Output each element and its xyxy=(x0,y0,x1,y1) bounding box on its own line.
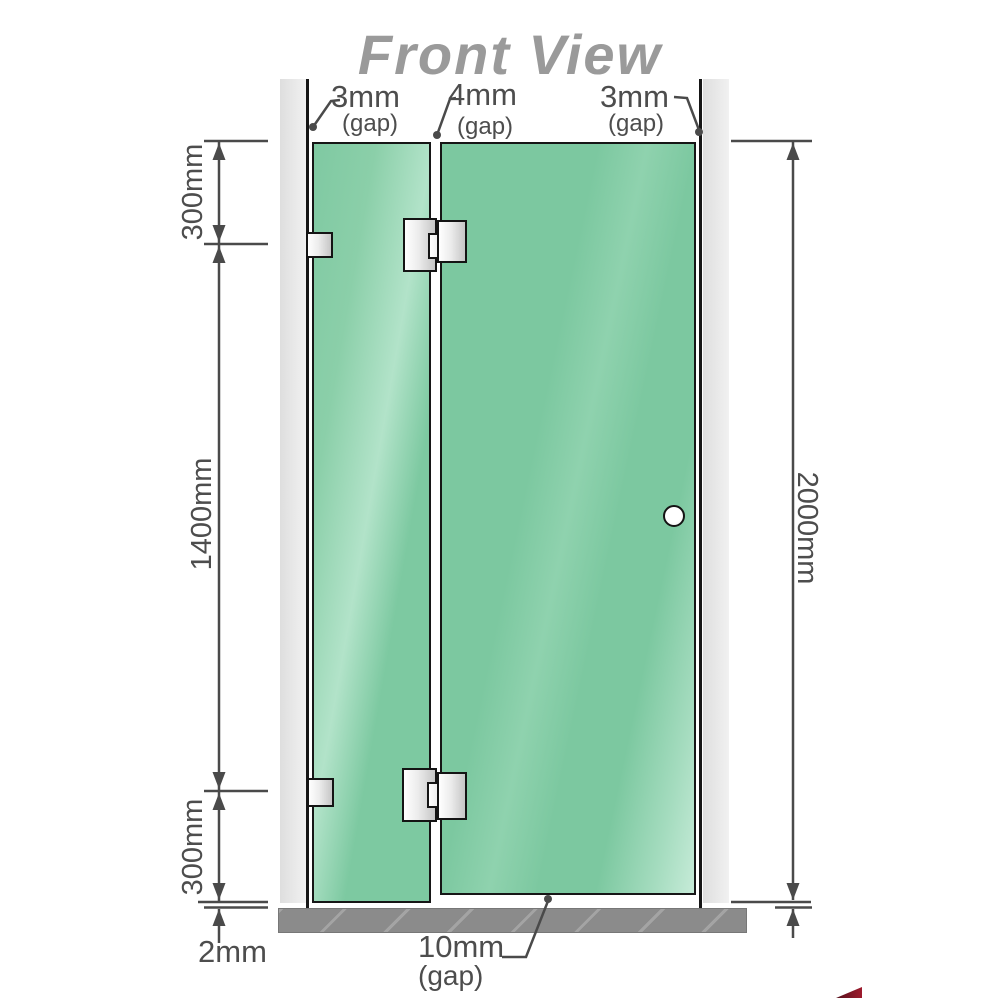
dimension-label-top-300mm: 300mm xyxy=(178,112,208,272)
gap-unit: (gap) xyxy=(418,962,504,990)
dimension-label-mid-1400mm: 1400mm xyxy=(187,434,217,594)
dimension-label-bottom-300mm: 300mm xyxy=(178,767,208,927)
right-wall-edge-line xyxy=(699,79,702,908)
right-wall-channel xyxy=(703,79,729,903)
gap-value: 10mm xyxy=(418,932,504,962)
top-wall-bracket xyxy=(306,232,333,258)
door-handle-knob xyxy=(663,505,685,527)
floor-gap-label-2mm: 2mm xyxy=(198,934,267,970)
gap-label-top-middle: 4mm (gap) xyxy=(448,80,517,139)
door-bottom-gap-label: 10mm (gap) xyxy=(418,932,504,990)
gap-value: 4mm xyxy=(448,80,517,110)
door-glass-panel xyxy=(440,142,696,895)
top-hinge-door-plate xyxy=(437,220,467,263)
dimension-label-total-2000mm: 2000mm xyxy=(792,448,822,608)
bottom-wall-bracket xyxy=(307,778,334,807)
gap-unit: (gap) xyxy=(600,112,669,136)
bottom-hinge-door-plate xyxy=(437,772,467,820)
gap-label-top-left: 3mm (gap) xyxy=(331,82,400,136)
gap-value: 3mm xyxy=(331,82,400,112)
floor-base xyxy=(278,908,747,933)
gap-unit: (gap) xyxy=(331,112,400,136)
gap-unit: (gap) xyxy=(448,110,517,139)
left-wall-channel xyxy=(280,79,306,903)
front-view-diagram: Front View xyxy=(0,0,1000,1000)
gap-label-top-right: 3mm (gap) xyxy=(600,82,669,136)
logo-sliver xyxy=(836,985,862,998)
gap-value: 3mm xyxy=(600,82,669,112)
